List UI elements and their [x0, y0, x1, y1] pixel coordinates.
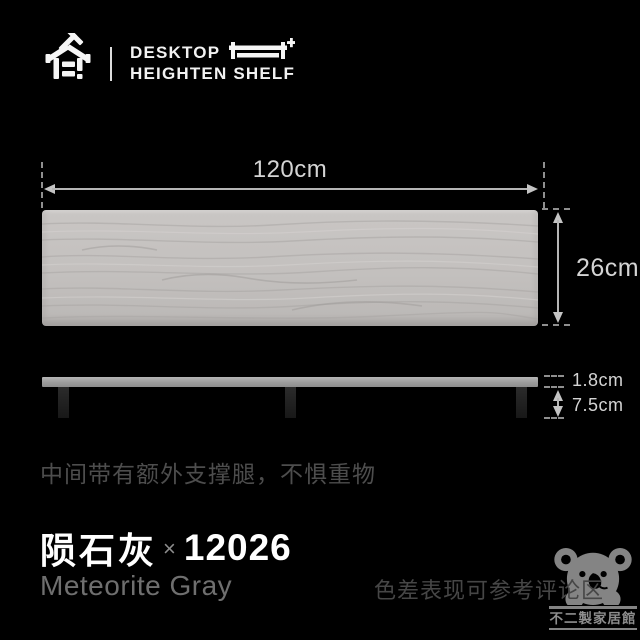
logo-divider — [110, 47, 112, 81]
arrow-line — [52, 188, 530, 190]
shelf-leg-right — [516, 387, 527, 418]
watermark-rule-bottom — [549, 628, 637, 630]
shelf-board-side-view — [42, 377, 538, 387]
height-extension-line-top — [542, 208, 570, 210]
shelf-leg-left — [58, 387, 69, 418]
thickness-extension-line-top — [544, 375, 564, 377]
brand-block: DESKTOP HEIGHTEN SHELF — [130, 42, 295, 84]
thickness-dimension-label: 1.8cm — [572, 370, 624, 391]
arrow-line — [557, 220, 559, 315]
wood-grain-texture — [42, 210, 538, 326]
brand-line2: HEIGHTEN SHELF — [130, 64, 295, 84]
width-extension-line-left — [41, 162, 43, 208]
watermark-rule-top — [549, 606, 637, 609]
width-extension-line-right — [543, 162, 545, 208]
arrow-right-head — [527, 184, 538, 194]
width-dimension-label: 120cm — [42, 156, 538, 184]
product-dimension-poster: DESKTOP HEIGHTEN SHELF 120cm — [0, 0, 640, 640]
shelf-leg-middle — [285, 387, 296, 418]
color-difference-note: 色差表现可参考评论区 — [374, 573, 604, 605]
leg-height-dimension-arrow — [553, 390, 563, 417]
arrow-down-head — [553, 406, 563, 417]
color-name-en: Meteorite Gray — [40, 570, 232, 602]
feature-caption: 中间带有额外支撑腿，不惧重物 — [40, 455, 376, 489]
width-dimension-arrow — [44, 184, 538, 194]
house-logo-icon — [42, 33, 94, 85]
leg-extension-line-bottom — [544, 417, 564, 419]
leg-height-dimension-label: 7.5cm — [572, 395, 624, 416]
watermark-shop-name: 不二製家居館 — [549, 611, 637, 626]
height-dimension-label: 26cm — [576, 254, 639, 283]
arrow-down-head — [553, 312, 563, 323]
shelf-riser-icon — [229, 38, 295, 64]
thickness-extension-line-bottom — [544, 386, 564, 388]
title-separator: × — [163, 536, 176, 562]
shelf-board-top-view — [42, 210, 538, 326]
product-title: 陨石灰 × 12026 — [40, 522, 292, 574]
color-name-cn: 陨石灰 — [40, 522, 157, 574]
height-dimension-arrow — [553, 212, 563, 323]
height-extension-line-bottom — [542, 324, 570, 326]
brand-line1: DESKTOP — [130, 43, 220, 63]
model-number: 12026 — [184, 527, 292, 569]
